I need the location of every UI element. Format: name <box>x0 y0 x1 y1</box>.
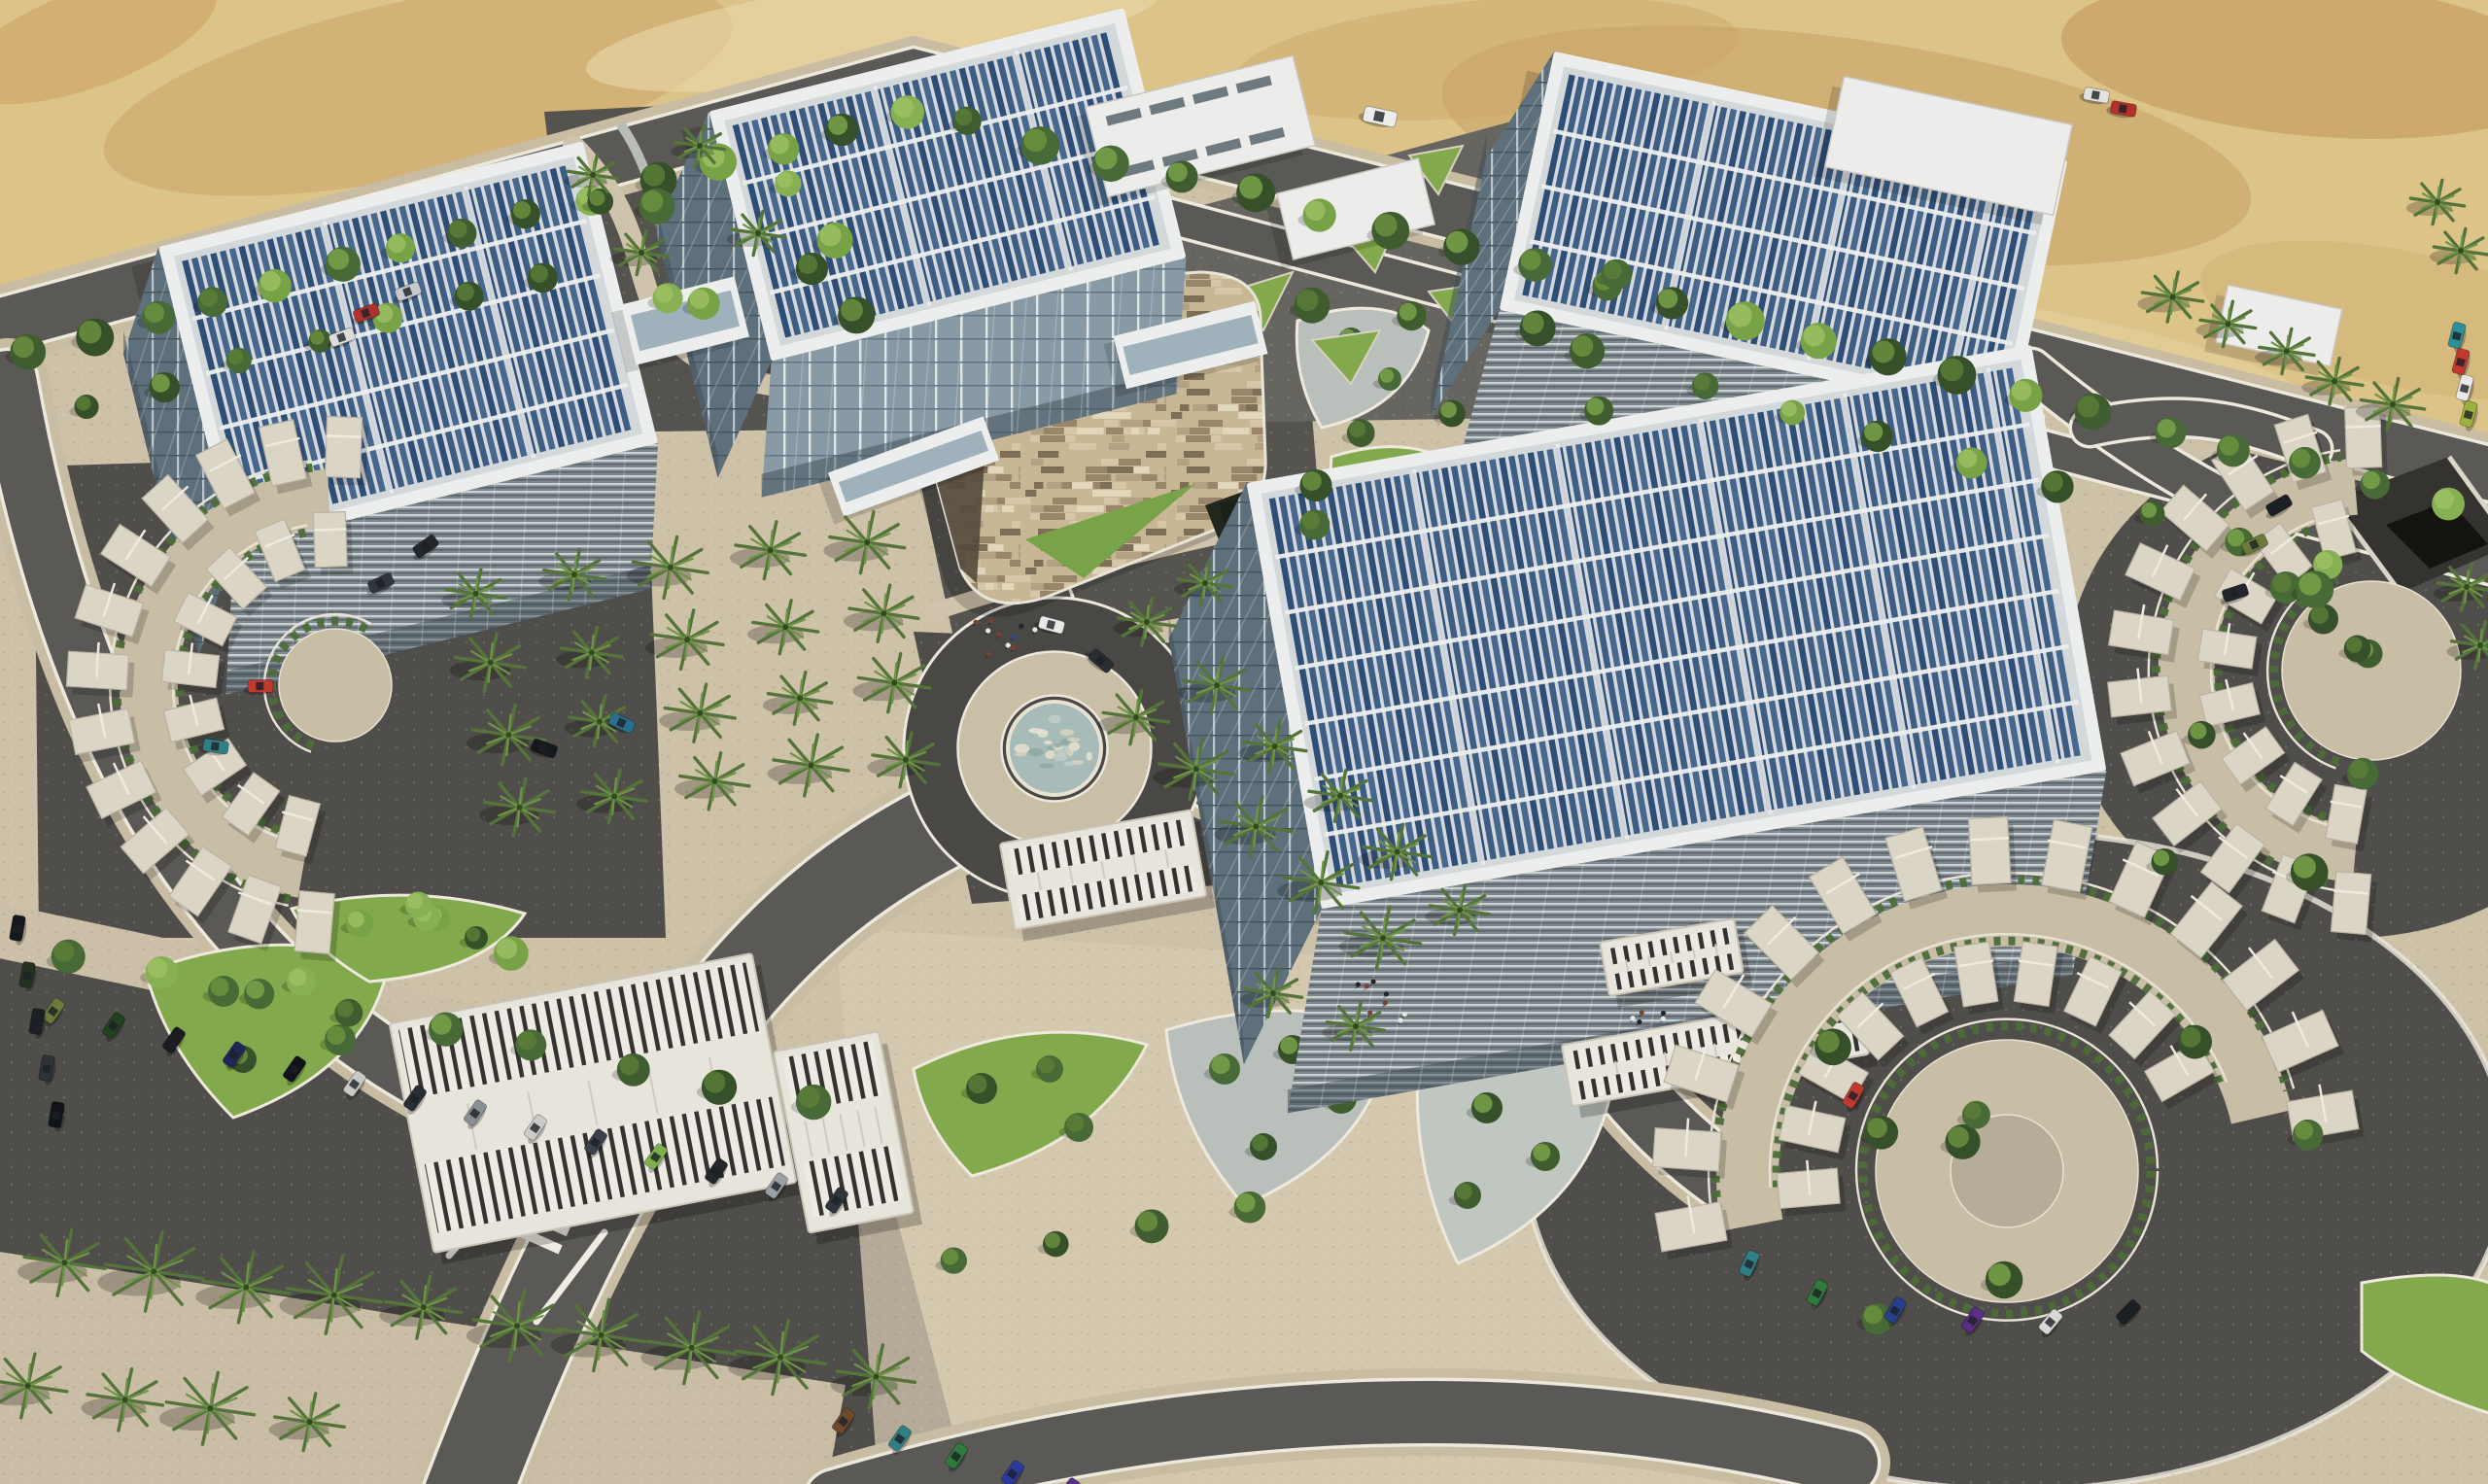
water-mosaic <box>1039 763 1054 768</box>
palm-crown <box>689 1345 695 1351</box>
palm-crown <box>2435 199 2440 205</box>
car-windshield <box>1373 111 1385 122</box>
parking-canopy <box>294 891 334 954</box>
palm-crown <box>2458 248 2464 254</box>
palm-crown <box>2464 584 2470 590</box>
palm-crown <box>590 172 596 178</box>
palm-crown <box>2332 378 2337 384</box>
palm-crown <box>505 732 511 738</box>
palm-crown <box>755 230 761 236</box>
person <box>1661 1017 1666 1021</box>
palm-crown <box>61 1260 67 1265</box>
palm-crown <box>777 1355 783 1361</box>
palm-crown <box>2225 321 2230 327</box>
person <box>1384 991 1389 996</box>
palm-crown <box>1202 580 1208 586</box>
car-windshield <box>13 924 22 933</box>
car-windshield <box>2091 90 2100 100</box>
parking-center-island <box>279 629 392 742</box>
palm-crown <box>589 649 595 655</box>
palm-crown <box>2477 642 2483 648</box>
palm-crown <box>2170 294 2176 300</box>
palm-crown <box>25 1383 31 1389</box>
car-windshield <box>256 682 263 690</box>
car-windshield <box>32 1018 42 1026</box>
water-mosaic <box>1028 748 1044 756</box>
palm-crown <box>473 591 479 597</box>
person <box>1637 1019 1641 1024</box>
palm-crown <box>711 778 717 784</box>
parking-canopy <box>2331 872 2370 935</box>
palm-crown <box>2284 348 2290 354</box>
palm-crown <box>873 1374 879 1380</box>
palm-crown <box>881 610 886 616</box>
palm-crown <box>697 710 703 716</box>
water-mosaic <box>1049 714 1061 723</box>
palm-crown <box>1318 880 1324 885</box>
parking-center-island <box>2282 581 2461 760</box>
person <box>1019 624 1023 629</box>
palm-crown <box>488 660 494 666</box>
person <box>1367 1010 1372 1015</box>
person <box>1640 1010 1644 1015</box>
palm-crown <box>1380 935 1386 941</box>
water-mosaic <box>1087 751 1092 760</box>
palm-crown <box>151 1268 156 1274</box>
palm-crown <box>243 1284 249 1290</box>
palm-crown <box>808 762 813 768</box>
palm-crown <box>207 1405 213 1411</box>
water-mosaic <box>1068 742 1080 750</box>
palm-crown <box>782 624 788 630</box>
person <box>1011 645 1016 650</box>
palm-crown <box>599 1332 605 1338</box>
person <box>1402 1012 1407 1017</box>
car-windshield <box>22 971 32 980</box>
person <box>1370 979 1375 984</box>
palm-crown <box>668 565 674 570</box>
water-mosaic <box>1015 752 1027 756</box>
palm-crown <box>797 695 803 701</box>
palm-crown <box>571 571 577 577</box>
car-windshield <box>2119 104 2127 114</box>
palm-crown <box>697 143 703 149</box>
person <box>1661 1011 1666 1016</box>
palm-crown <box>1144 619 1150 625</box>
water-mosaic <box>1028 728 1043 734</box>
parking-canopy <box>313 512 347 568</box>
palm-crown <box>1395 849 1400 855</box>
water-mosaic <box>1045 750 1054 759</box>
palm-crown <box>517 805 523 811</box>
palm-crown <box>421 1304 427 1310</box>
water-mosaic <box>1054 743 1061 748</box>
person <box>1006 642 1011 647</box>
palm-crown <box>2390 401 2396 407</box>
palm-crown <box>1272 743 1278 749</box>
palm-crown <box>122 1397 128 1402</box>
water-mosaic <box>1059 729 1074 736</box>
water-mosaic <box>1015 743 1030 753</box>
water-mosaic <box>1067 738 1080 742</box>
palm-crown <box>903 757 909 763</box>
palm-crown <box>864 539 870 545</box>
palm-crown <box>514 1323 520 1329</box>
parking-canopy <box>326 417 363 478</box>
palm-crown <box>1353 1023 1359 1029</box>
water-mosaic <box>1054 753 1067 762</box>
car <box>244 680 273 696</box>
palm-crown <box>597 718 603 724</box>
palm-crown <box>306 1419 312 1425</box>
water-mosaic <box>1044 741 1053 744</box>
person <box>1032 627 1037 632</box>
palm-crown <box>891 680 897 686</box>
person <box>1630 1016 1635 1020</box>
palm-crown <box>1337 793 1343 799</box>
palm-crown <box>1270 990 1276 996</box>
car-windshield <box>42 1064 52 1073</box>
scene-canvas <box>0 0 2488 1484</box>
palm-crown <box>1214 682 1220 688</box>
palm-crown <box>1193 766 1199 772</box>
person <box>1011 634 1016 638</box>
person <box>973 620 978 625</box>
water-mosaic <box>1064 762 1075 767</box>
person <box>1383 1000 1388 1005</box>
car-windshield <box>211 742 220 750</box>
palm-crown <box>639 250 644 256</box>
parking-canopy <box>1969 817 2012 885</box>
person <box>1399 1018 1403 1022</box>
palm-crown <box>1253 823 1259 829</box>
person <box>1365 984 1369 988</box>
person <box>996 632 1001 637</box>
palm-crown <box>331 1293 337 1298</box>
person <box>988 618 993 623</box>
car-windshield <box>52 1111 61 1120</box>
palm-crown <box>1133 714 1139 720</box>
palm-crown <box>1457 907 1463 913</box>
palm-crown <box>684 637 690 642</box>
campus-aerial-rendering <box>0 0 2488 1484</box>
person <box>986 651 991 656</box>
person <box>985 628 990 633</box>
palm-crown <box>768 547 774 553</box>
person <box>1356 982 1361 986</box>
palm-crown <box>611 794 617 800</box>
